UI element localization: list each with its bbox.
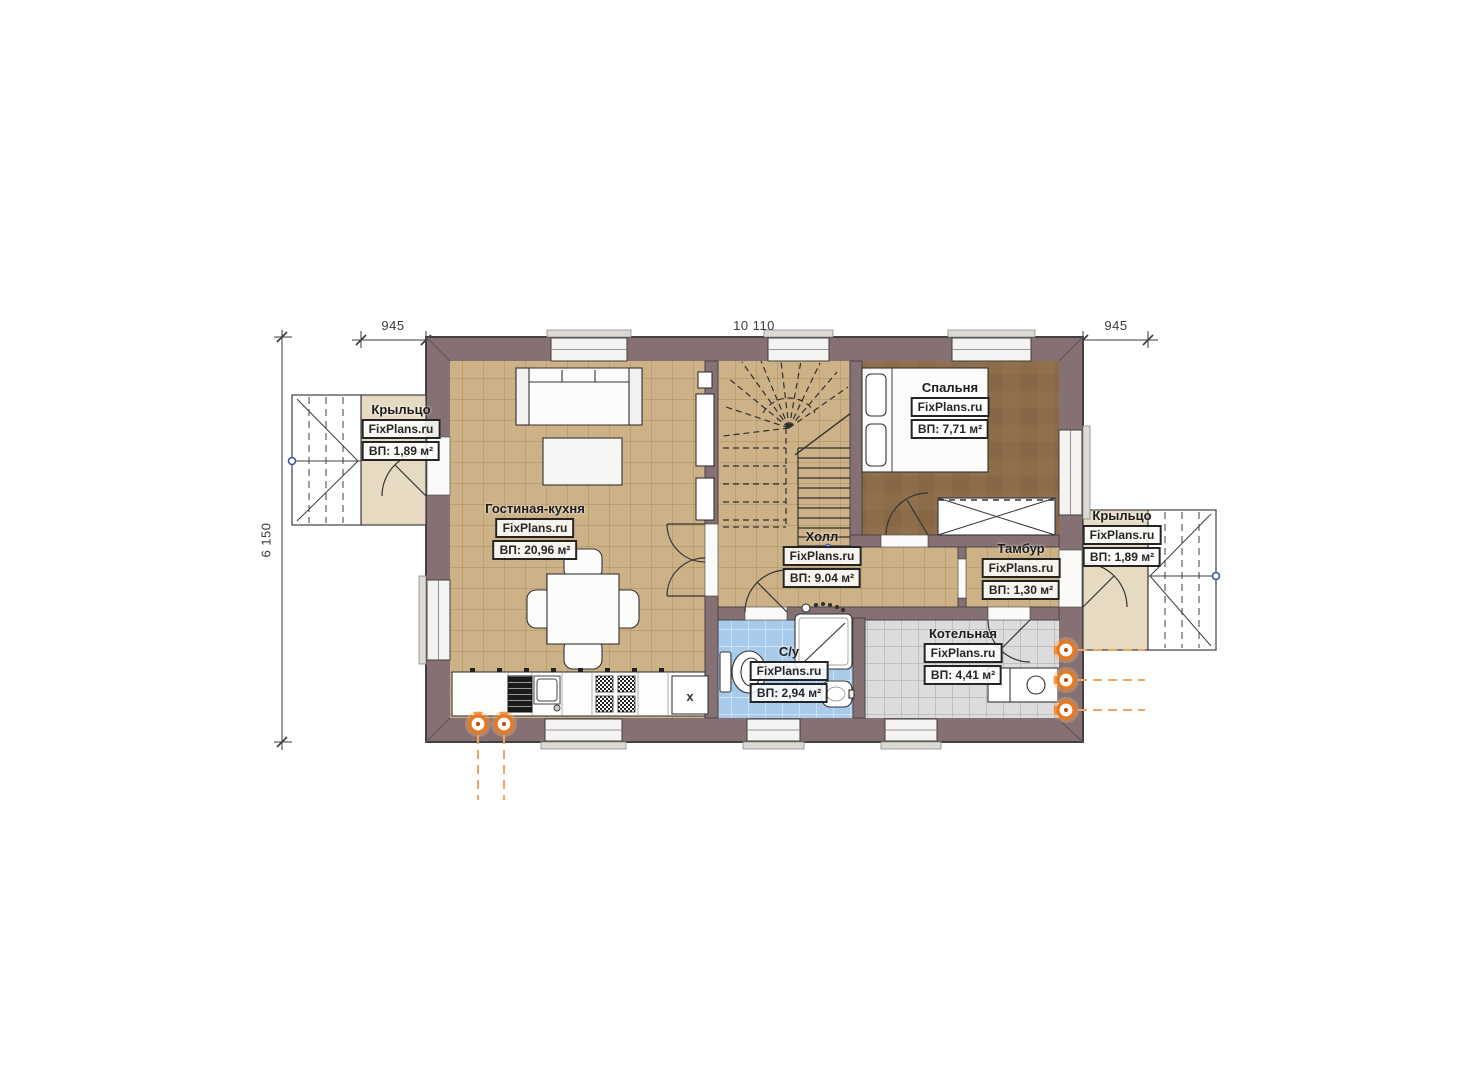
bathroom-door-opening: [745, 607, 787, 620]
tambour-exit-opening: [1059, 550, 1082, 607]
utility-marker-right-2: [1053, 667, 1145, 693]
dimension-top-right: 945: [1104, 318, 1127, 333]
kitchen-counter: x: [452, 668, 708, 716]
fridge-x-mark: x: [686, 689, 694, 704]
utility-marker-bottom-2: [491, 711, 517, 800]
sofa: [516, 368, 642, 425]
toilet: [720, 651, 766, 693]
wardrobe: [938, 498, 1055, 535]
utility-marker-right-3: [1053, 697, 1145, 723]
porch-right: [1083, 510, 1216, 650]
dimension-left-height: 6 150: [259, 522, 274, 557]
coffee-table: [543, 438, 622, 485]
tambour-passage-opening: [958, 559, 966, 598]
floor-plan-drawing: x: [0, 0, 1473, 1080]
utility-marker-bottom-1: [465, 711, 491, 800]
dimension-top-left: 945: [381, 318, 404, 333]
dimension-top-center: 10 110: [733, 318, 775, 333]
bathroom-sink: [822, 681, 854, 707]
pillow: [866, 374, 886, 416]
dishwasher: [508, 676, 532, 712]
dining-table: [547, 574, 619, 644]
floor-plan-canvas: x: [0, 0, 1473, 1080]
boiler-door-opening: [988, 607, 1030, 620]
bed: [862, 368, 988, 472]
boiler-unit: [988, 668, 1058, 702]
tv-shelving-units: [696, 372, 714, 520]
living-double-door-opening: [705, 524, 718, 596]
porch-left: [292, 395, 426, 525]
entry-door-opening: [427, 437, 450, 495]
fridge: x: [672, 676, 708, 714]
bedroom-door-opening: [881, 535, 928, 547]
pillow: [866, 424, 886, 466]
